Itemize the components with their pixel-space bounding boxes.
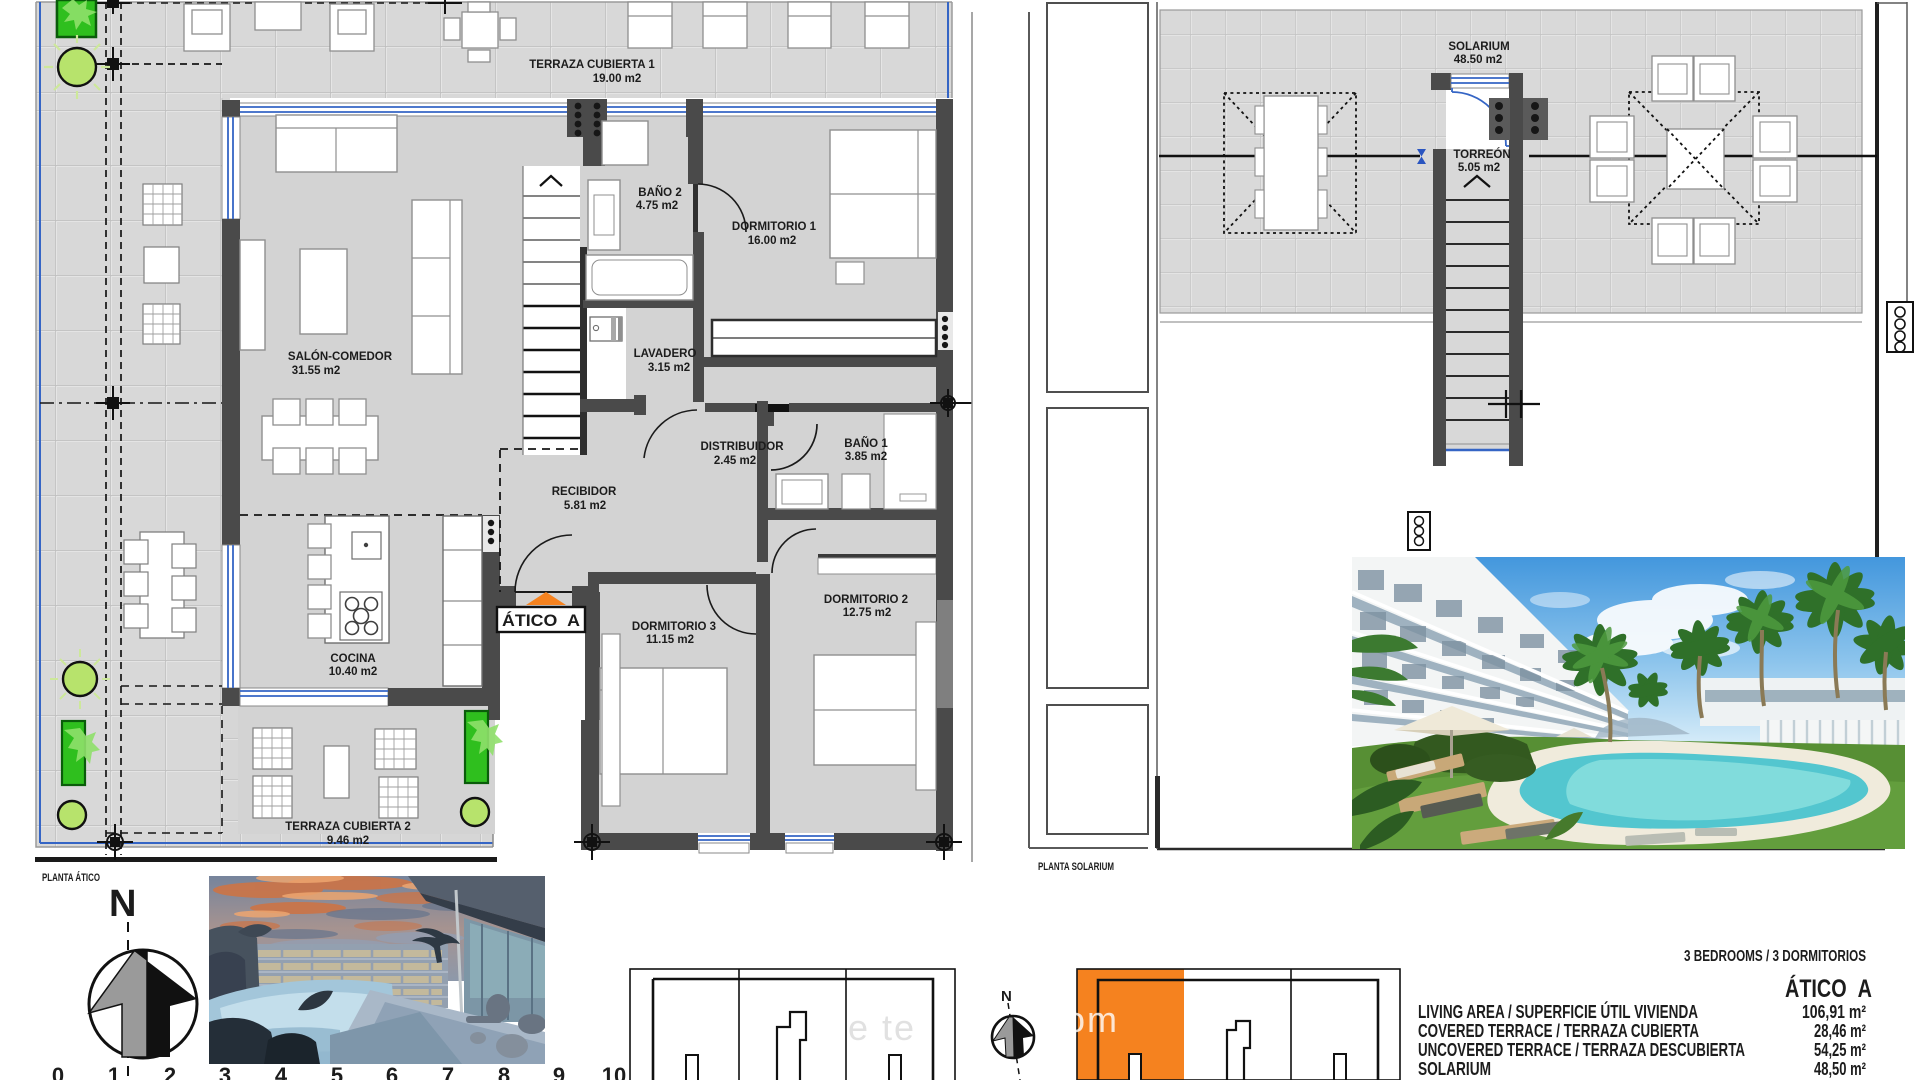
svg-text:BAÑO 1: BAÑO 1	[844, 437, 888, 450]
svg-text:om: om	[1065, 999, 1119, 1040]
svg-text:10.40 m2: 10.40 m2	[329, 666, 378, 678]
svg-text:DISTRIBUIDOR: DISTRIBUIDOR	[700, 441, 784, 453]
svg-text:RECIBIDOR: RECIBIDOR	[552, 486, 617, 498]
svg-text:TERRAZA CUBIERTA 2: TERRAZA CUBIERTA 2	[285, 821, 410, 833]
svg-text:48.50 m2: 48.50 m2	[1454, 54, 1503, 66]
svg-text:PLANTA SOLARIUM: PLANTA SOLARIUM	[1038, 861, 1114, 873]
svg-text:5.81 m2: 5.81 m2	[564, 500, 606, 512]
svg-text:5: 5	[331, 1063, 343, 1080]
svg-text:54,25 m²: 54,25 m²	[1814, 1040, 1866, 1060]
svg-text:4.75 m2: 4.75 m2	[636, 200, 678, 212]
svg-text:ÁTICO A: ÁTICO A	[502, 611, 580, 630]
svg-text:LIVING AREA / SUPERFICIE ÚTIL: LIVING AREA / SUPERFICIE ÚTIL VIVIENDA	[1418, 1001, 1698, 1022]
svg-text:3 BEDROOMS / 3 DORMITORIOS: 3 BEDROOMS / 3 DORMITORIOS	[1684, 948, 1866, 965]
svg-text:2: 2	[164, 1063, 176, 1080]
svg-text:BAÑO 2: BAÑO 2	[638, 186, 681, 199]
svg-text:SOLARIUM: SOLARIUM	[1418, 1059, 1491, 1079]
svg-text:8: 8	[498, 1063, 510, 1080]
svg-text:11.15 m2: 11.15 m2	[646, 634, 694, 646]
svg-text:2.45 m2: 2.45 m2	[714, 455, 756, 467]
svg-text:106,91 m²: 106,91 m²	[1802, 1002, 1866, 1022]
svg-text:DORMITORIO 2: DORMITORIO 2	[824, 594, 908, 606]
svg-text:SALÓN-COMEDOR: SALÓN-COMEDOR	[288, 350, 393, 363]
svg-text:9.46 m2: 9.46 m2	[327, 835, 369, 847]
svg-text:7: 7	[442, 1063, 454, 1080]
svg-text:10: 10	[602, 1063, 626, 1080]
svg-text:TORREÓN: TORREÓN	[1453, 148, 1510, 161]
svg-text:DORMITORIO 1: DORMITORIO 1	[732, 221, 817, 233]
svg-text:1: 1	[108, 1063, 120, 1080]
svg-text:31.55 m2: 31.55 m2	[292, 365, 341, 377]
svg-text:N: N	[1001, 988, 1012, 1005]
svg-text:PLANTA ÁTICO: PLANTA ÁTICO	[42, 871, 100, 884]
svg-text:3: 3	[219, 1063, 231, 1080]
svg-text:48,50 m²: 48,50 m²	[1814, 1059, 1866, 1079]
svg-text:9: 9	[553, 1063, 565, 1080]
svg-text:LAVADERO: LAVADERO	[634, 348, 697, 360]
svg-text:UNCOVERED TERRACE / TERRAZA DE: UNCOVERED TERRACE / TERRAZA DESCUBIERTA	[1418, 1040, 1745, 1060]
svg-text:5.05 m2: 5.05 m2	[1458, 162, 1500, 174]
svg-text:4: 4	[275, 1063, 288, 1080]
svg-text:TERRAZA CUBIERTA 1: TERRAZA CUBIERTA 1	[529, 59, 655, 71]
svg-text:e te: e te	[848, 1007, 916, 1048]
svg-text:3.85 m2: 3.85 m2	[845, 451, 887, 463]
svg-text:N: N	[109, 883, 137, 925]
svg-text:ÁTICO A: ÁTICO A	[1785, 974, 1872, 1003]
svg-text:28,46 m²: 28,46 m²	[1814, 1021, 1866, 1041]
svg-text:SOLARIUM: SOLARIUM	[1448, 41, 1509, 53]
svg-text:6: 6	[386, 1063, 398, 1080]
svg-text:DORMITORIO 3: DORMITORIO 3	[632, 621, 716, 633]
svg-text:3.15 m2: 3.15 m2	[648, 362, 690, 374]
svg-text:12.75 m2: 12.75 m2	[843, 607, 892, 619]
svg-text:19.00 m2: 19.00 m2	[593, 73, 642, 85]
svg-text:16.00 m2: 16.00 m2	[748, 235, 797, 247]
svg-text:COVERED TERRACE / TERRAZA CUBI: COVERED TERRACE / TERRAZA CUBIERTA	[1418, 1021, 1699, 1041]
svg-text:0: 0	[52, 1063, 64, 1080]
svg-text:COCINA: COCINA	[330, 653, 375, 665]
